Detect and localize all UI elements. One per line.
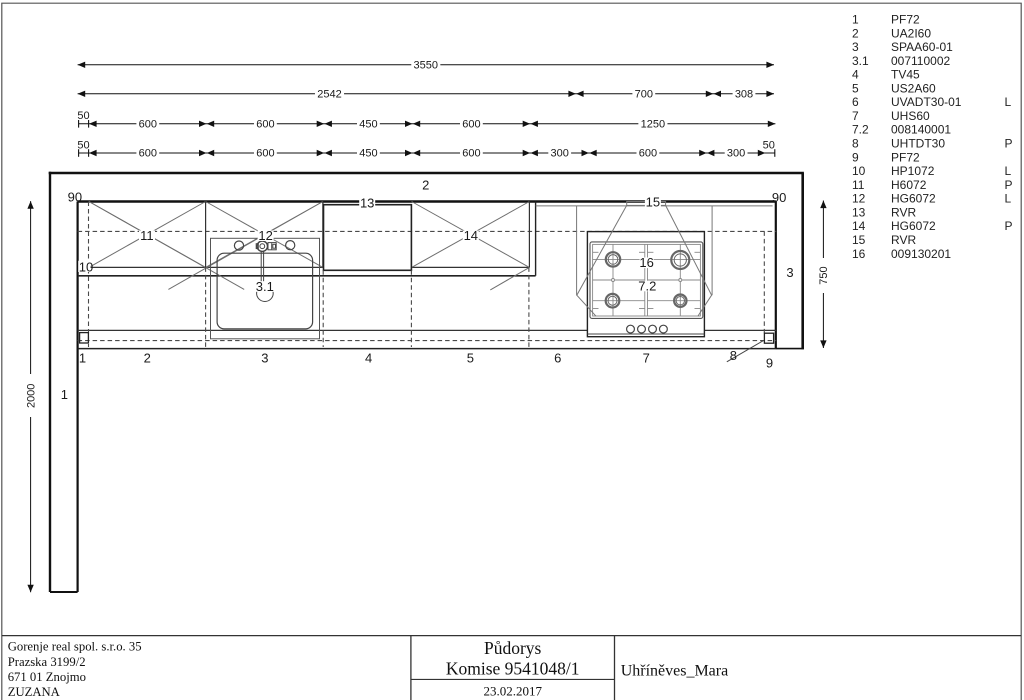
svg-text:P: P [1005, 219, 1013, 233]
svg-text:600: 600 [139, 118, 157, 130]
svg-text:2000: 2000 [25, 384, 37, 408]
svg-text:50: 50 [77, 110, 89, 122]
svg-text:US2A60: US2A60 [891, 81, 936, 95]
svg-text:11: 11 [140, 228, 154, 243]
svg-text:UA2I60: UA2I60 [891, 26, 931, 40]
svg-text:1: 1 [852, 13, 859, 27]
svg-text:9: 9 [766, 355, 773, 370]
svg-text:H6072: H6072 [891, 178, 927, 192]
svg-text:50: 50 [77, 139, 89, 151]
svg-text:7.2: 7.2 [638, 278, 656, 293]
svg-text:90: 90 [68, 189, 82, 204]
svg-text:8: 8 [730, 348, 737, 363]
svg-text:8: 8 [852, 137, 859, 151]
svg-text:2: 2 [144, 351, 151, 366]
svg-text:15: 15 [646, 194, 660, 209]
svg-text:600: 600 [256, 148, 274, 160]
svg-text:5: 5 [467, 351, 474, 366]
svg-text:009130201: 009130201 [891, 247, 951, 261]
svg-text:UVADT30-01: UVADT30-01 [891, 95, 962, 109]
svg-text:600: 600 [462, 118, 480, 130]
svg-text:3550: 3550 [414, 59, 438, 71]
svg-text:2: 2 [422, 177, 429, 192]
svg-text:P: P [1005, 137, 1013, 151]
svg-text:12: 12 [852, 192, 866, 206]
svg-text:16: 16 [852, 247, 866, 261]
svg-text:HG6072: HG6072 [891, 192, 936, 206]
svg-text:2542: 2542 [317, 88, 341, 100]
svg-text:15: 15 [852, 233, 866, 247]
svg-text:3: 3 [852, 40, 859, 54]
svg-text:1: 1 [79, 351, 86, 366]
svg-text:750: 750 [818, 266, 830, 284]
svg-text:Uhříněves_Mara: Uhříněves_Mara [621, 662, 729, 679]
svg-text:ZUZANA: ZUZANA [8, 685, 61, 699]
svg-text:3: 3 [786, 265, 793, 280]
svg-text:1250: 1250 [641, 118, 665, 130]
svg-text:7: 7 [852, 109, 859, 123]
svg-text:50: 50 [763, 139, 775, 151]
svg-text:10: 10 [79, 259, 93, 274]
svg-text:9: 9 [852, 150, 859, 164]
svg-text:671 01 Znojmo: 671 01 Znojmo [8, 670, 86, 684]
svg-text:Půdorys: Půdorys [484, 638, 542, 658]
svg-text:23.02.2017: 23.02.2017 [483, 684, 542, 699]
svg-text:4: 4 [852, 68, 859, 82]
svg-text:450: 450 [359, 118, 377, 130]
svg-text:PF72: PF72 [891, 13, 920, 27]
svg-text:308: 308 [735, 88, 753, 100]
svg-text:3.1: 3.1 [852, 54, 869, 68]
svg-text:13: 13 [852, 205, 866, 219]
svg-text:TV45: TV45 [891, 68, 920, 82]
svg-text:PF72: PF72 [891, 150, 920, 164]
svg-text:90: 90 [772, 190, 786, 205]
svg-text:HP1072: HP1072 [891, 164, 935, 178]
svg-text:2: 2 [852, 26, 859, 40]
svg-text:SPAA60-01: SPAA60-01 [891, 40, 953, 54]
svg-text:14: 14 [464, 228, 478, 243]
svg-text:UHTDT30: UHTDT30 [891, 137, 945, 151]
svg-text:4: 4 [365, 351, 372, 366]
svg-text:5: 5 [852, 81, 859, 95]
svg-text:008140001: 008140001 [891, 123, 951, 137]
svg-text:HG6072: HG6072 [891, 219, 936, 233]
svg-text:10: 10 [852, 164, 866, 178]
svg-text:3.1: 3.1 [256, 279, 274, 294]
svg-text:Gorenje real spol. s.r.o. 35: Gorenje real spol. s.r.o. 35 [8, 640, 142, 654]
svg-text:1: 1 [61, 387, 68, 402]
svg-text:600: 600 [462, 148, 480, 160]
svg-text:12: 12 [258, 228, 272, 243]
svg-text:600: 600 [256, 118, 274, 130]
svg-text:300: 300 [551, 148, 569, 160]
svg-text:UHS60: UHS60 [891, 109, 930, 123]
svg-text:P: P [1005, 178, 1013, 192]
svg-text:600: 600 [139, 148, 157, 160]
svg-text:300: 300 [727, 148, 745, 160]
svg-text:700: 700 [635, 88, 653, 100]
svg-text:7: 7 [643, 351, 650, 366]
svg-text:16: 16 [639, 255, 653, 270]
svg-text:007110002: 007110002 [891, 54, 951, 68]
svg-text:Prazska 3199/2: Prazska 3199/2 [8, 655, 86, 669]
svg-text:600: 600 [639, 148, 657, 160]
svg-text:6: 6 [554, 351, 561, 366]
svg-text:11: 11 [852, 178, 865, 192]
svg-text:RVR: RVR [891, 205, 916, 219]
svg-text:RVR: RVR [891, 233, 916, 247]
svg-text:6: 6 [852, 95, 859, 109]
svg-text:Komise 9541048/1: Komise 9541048/1 [446, 659, 580, 679]
svg-text:L: L [1005, 192, 1012, 206]
svg-text:14: 14 [852, 219, 866, 233]
svg-text:L: L [1005, 164, 1012, 178]
svg-text:450: 450 [359, 148, 377, 160]
svg-text:7.2: 7.2 [852, 123, 869, 137]
svg-text:L: L [1005, 95, 1012, 109]
svg-text:3: 3 [261, 351, 268, 366]
svg-text:13: 13 [360, 196, 374, 211]
